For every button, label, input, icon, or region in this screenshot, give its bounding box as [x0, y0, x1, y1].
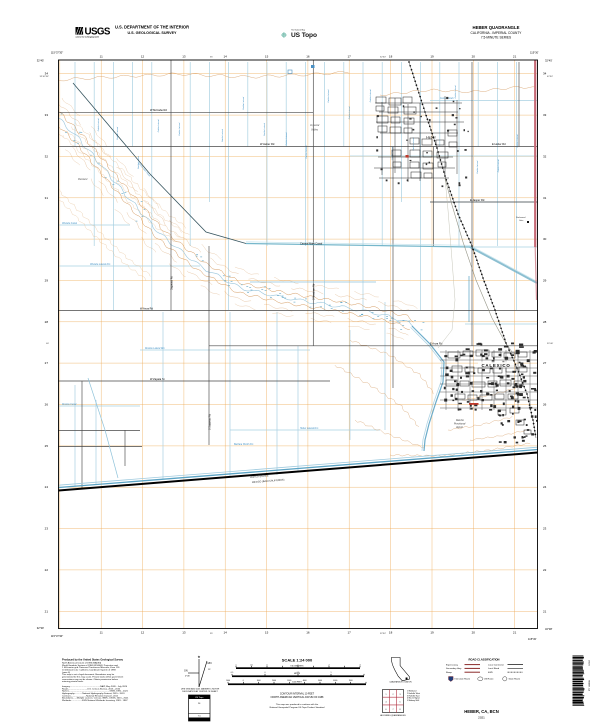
svg-text:Wistaria Lateral Drn: Wistaria Lateral Drn: [90, 263, 111, 266]
svg-text:US Topo: US Topo: [195, 697, 204, 699]
svg-text:115°37'30": 115°37'30": [51, 634, 63, 638]
svg-text:Heber: Heber: [426, 136, 437, 140]
svg-text:12: 12: [141, 631, 145, 635]
svg-text:32: 32: [45, 154, 49, 158]
svg-text:1000 FEET: 1000 FEET: [292, 681, 302, 683]
svg-text:23: 23: [543, 527, 547, 531]
svg-text:4WD: 4WD: [488, 672, 493, 674]
svg-text:14: 14: [224, 631, 228, 635]
svg-text:14: 14: [224, 55, 228, 59]
svg-text:3: 3: [360, 664, 361, 666]
svg-text:32°45': 32°45': [545, 59, 553, 63]
svg-text:16: 16: [306, 631, 310, 635]
svg-text:E Heber Rd: E Heber Rd: [492, 142, 506, 146]
svg-text:32°42'30": 32°42'30": [40, 76, 50, 78]
svg-text:NORTH AMERICAN VERTICAL DATUM: NORTH AMERICAN VERTICAL DATUM OF 1988: [271, 696, 324, 699]
svg-text:Secondary Hwy: Secondary Hwy: [446, 667, 462, 670]
svg-text:29: 29: [543, 278, 547, 282]
svg-text:20: 20: [472, 55, 476, 59]
svg-text:1000: 1000: [226, 680, 230, 682]
svg-text:32°45': 32°45': [37, 59, 45, 63]
svg-text:1: 1: [386, 694, 387, 696]
svg-text:0: 0: [243, 680, 244, 682]
svg-text:24: 24: [45, 485, 49, 489]
svg-text:6: 6: [386, 709, 387, 711]
svg-text:W Anza Rd: W Anza Rd: [140, 306, 154, 310]
svg-text:5: 5: [400, 702, 401, 704]
svg-text:3000: 3000: [287, 680, 291, 682]
svg-text:Meloland: Meloland: [78, 179, 88, 181]
svg-text:Dahlia Lateral: Dahlia Lateral: [476, 160, 479, 173]
svg-text:Dahlia Lateral: Dahlia Lateral: [497, 159, 500, 172]
svg-text:8: 8: [400, 709, 401, 711]
svg-text:National Geospatial Program US: National Geospatial Program US Topo Prod…: [270, 706, 325, 709]
svg-text:Dahlia Lateral: Dahlia Lateral: [327, 89, 330, 102]
svg-text:27: 27: [543, 361, 547, 365]
svg-text:22: 22: [543, 568, 547, 572]
svg-text:QUADRANGLE LOCATION: QUADRANGLE LOCATION: [389, 681, 412, 684]
svg-text:W McCabe Rd: W McCabe Rd: [150, 108, 167, 112]
svg-text:Rockwood: Rockwood: [516, 217, 525, 219]
svg-text:25: 25: [543, 444, 547, 448]
svg-text:Valley: Valley: [311, 128, 319, 132]
svg-text:2: 2: [329, 664, 330, 666]
svg-text:2021: 2021: [478, 716, 485, 720]
svg-text:21: 21: [513, 631, 517, 635]
svg-text:7000: 7000: [349, 680, 353, 682]
svg-text:21: 21: [543, 609, 547, 613]
svg-text:Rancho: Rancho: [456, 420, 465, 422]
svg-text:21: 21: [45, 609, 49, 613]
svg-text:Dahlia Lateral: Dahlia Lateral: [221, 129, 224, 142]
svg-text:E Jasper Rd: E Jasper Rd: [470, 198, 485, 202]
svg-text:Airport: Airport: [455, 426, 463, 429]
svg-text:U.S. GEOLOGICAL SURVEY: U.S. GEOLOGICAL SURVEY: [127, 31, 177, 35]
svg-text:0.5: 0.5: [250, 664, 253, 666]
svg-text:Imperial: Imperial: [310, 123, 320, 127]
svg-text:32: 32: [543, 154, 547, 158]
svg-text:19: 19: [430, 55, 434, 59]
svg-text:Dahlia Lateral: Dahlia Lateral: [305, 145, 308, 158]
svg-text:6000: 6000: [333, 680, 337, 682]
svg-text:28: 28: [543, 320, 547, 324]
svg-text:10 000-foot ticks: California: 10 000-foot ticks: California Coordinate…: [62, 669, 116, 672]
svg-text:Barbara Worth Drn: Barbara Worth Drn: [234, 443, 254, 446]
svg-text:32°40': 32°40': [547, 343, 554, 345]
svg-text:4: 4: [386, 702, 387, 704]
svg-text:22: 22: [45, 568, 49, 572]
svg-text:W Heber Rd: W Heber Rd: [260, 142, 275, 146]
svg-text:Dahlia Lateral: Dahlia Lateral: [369, 89, 372, 102]
svg-text:USGS: USGS: [588, 660, 590, 666]
svg-text:31: 31: [45, 196, 49, 200]
svg-text:16: 16: [306, 55, 310, 59]
svg-text:MN: MN: [208, 661, 212, 665]
svg-text:entering private lands.: entering private lands.: [62, 680, 84, 683]
svg-text:24: 24: [543, 485, 547, 489]
svg-text:Wistaria Canal: Wistaria Canal: [62, 222, 77, 225]
svg-text:11°: 11°: [208, 669, 211, 671]
svg-text:32°39': 32°39': [37, 626, 45, 630]
svg-text:2: 2: [393, 694, 394, 696]
svg-text:115°30': 115°30': [528, 637, 537, 641]
svg-text:Dahlia Lateral: Dahlia Lateral: [157, 119, 160, 132]
svg-text:0: 0: [265, 672, 266, 674]
svg-text:15: 15: [265, 55, 269, 59]
svg-text:23: 23: [45, 527, 49, 531]
svg-text:Dahlia Lateral: Dahlia Lateral: [178, 122, 181, 135]
svg-text:CALEXICO: CALEXICO: [481, 363, 510, 368]
svg-text:GN: GN: [184, 670, 188, 673]
svg-text:13: 13: [182, 631, 186, 635]
svg-text:State Route: State Route: [509, 678, 521, 681]
svg-text:15: 15: [265, 631, 269, 635]
svg-text:0.5: 0.5: [297, 672, 300, 674]
svg-text:28: 28: [45, 320, 49, 324]
svg-text:HEBER QUADRANGLE: HEBER QUADRANGLE: [472, 25, 519, 30]
svg-text:17: 17: [348, 55, 352, 59]
svg-text:Interstate Route: Interstate Route: [455, 678, 471, 681]
svg-text:US Topo: US Topo: [291, 32, 317, 39]
svg-text:E Anza Rd: E Anza Rd: [430, 342, 443, 346]
svg-text:1000: 1000: [257, 680, 261, 682]
svg-text:5000: 5000: [318, 680, 322, 682]
svg-text:Dahlia Lateral: Dahlia Lateral: [97, 118, 100, 131]
svg-text:5 Midway Well: 5 Midway Well: [407, 700, 420, 702]
svg-text:Dahlia Lateral: Dahlia Lateral: [242, 96, 245, 109]
svg-text:US Route: US Route: [484, 678, 494, 681]
svg-text:0.5: 0.5: [231, 672, 234, 674]
svg-text:33: 33: [45, 113, 49, 117]
svg-text:Rositas Lateral Drn: Rositas Lateral Drn: [145, 347, 165, 350]
svg-text:18: 18: [389, 631, 393, 635]
svg-text:Dahlia Lateral: Dahlia Lateral: [348, 106, 351, 119]
svg-text:4000: 4000: [303, 680, 307, 682]
svg-text:Produced by the United States: Produced by the United States Geological…: [62, 658, 124, 662]
svg-text:0°06': 0°06': [185, 676, 191, 678]
svg-text:Local Connector: Local Connector: [488, 663, 504, 666]
svg-text:11: 11: [100, 55, 103, 59]
svg-text:1: 1: [298, 664, 299, 666]
svg-text:DECLINATION AT CENTER OF SHEET: DECLINATION AT CENTER OF SHEET: [182, 690, 218, 693]
svg-text:W Zapata St: W Zapata St: [150, 377, 165, 381]
svg-text:26: 26: [543, 403, 547, 407]
svg-text:30: 30: [45, 237, 49, 241]
svg-text:21: 21: [513, 55, 517, 59]
svg-text:33: 33: [543, 113, 547, 117]
svg-text:Wetlands..................FWS: Wetlands..................FWS National W…: [62, 699, 128, 702]
svg-text:0: 0: [267, 664, 268, 666]
svg-text:Dahlia Lateral: Dahlia Lateral: [116, 126, 119, 139]
svg-text:2000: 2000: [272, 680, 276, 682]
svg-text:science for a changing world: science for a changing world: [76, 37, 100, 39]
svg-text:S Meadows Rd: S Meadows Rd: [313, 283, 316, 300]
svg-text:This map was produced to confo: This map was produced to conform with th…: [276, 703, 319, 706]
svg-text:7: 7: [393, 709, 394, 711]
svg-text:18: 18: [389, 55, 393, 59]
svg-text:SCALE 1:24 000: SCALE 1:24 000: [282, 658, 313, 663]
svg-text:Expressway: Expressway: [446, 663, 459, 666]
svg-text:26: 26: [45, 403, 49, 407]
svg-text:17: 17: [348, 631, 352, 635]
svg-text:11: 11: [100, 631, 103, 635]
svg-text:Rositas Canal: Rositas Canal: [62, 403, 77, 406]
svg-text:U.S. DEPARTMENT OF THE INTERIO: U.S. DEPARTMENT OF THE INTERIOR: [115, 25, 189, 30]
svg-text:Local Road: Local Road: [488, 668, 500, 670]
svg-text:Dahlia Lateral: Dahlia Lateral: [285, 132, 288, 145]
svg-text:12: 12: [141, 55, 145, 59]
svg-text:27: 27: [45, 361, 49, 365]
svg-text:13: 13: [182, 55, 186, 59]
svg-text:3: 3: [400, 694, 401, 696]
svg-text:25: 25: [45, 444, 49, 448]
svg-text:Dahlia Lateral: Dahlia Lateral: [263, 123, 266, 136]
svg-text:1: 1: [331, 672, 332, 674]
svg-text:32'30": 32'30": [380, 633, 386, 635]
svg-text:Provisional: Provisional: [454, 424, 466, 426]
svg-text:1: 1: [236, 664, 237, 666]
svg-text:Dogwood Rd: Dogwood Rd: [171, 276, 174, 290]
svg-text:Central Main Canal: Central Main Canal: [300, 242, 323, 246]
svg-text:42'30": 42'30": [547, 76, 553, 78]
svg-text:7.5-MINUTE SERIES: 7.5-MINUTE SERIES: [481, 36, 511, 40]
svg-text:Ramp: Ramp: [446, 672, 453, 674]
svg-text:19: 19: [430, 631, 434, 635]
svg-text:Heber Lateral Drn: Heber Lateral Drn: [300, 427, 319, 430]
svg-text:ADJOINING QUADRANGLES: ADJOINING QUADRANGLES: [380, 714, 406, 717]
svg-text:20: 20: [472, 631, 476, 635]
svg-text:29: 29: [45, 278, 49, 282]
svg-text:32°38': 32°38': [545, 627, 553, 631]
svg-text:S Dogwood Rd: S Dogwood Rd: [209, 413, 212, 430]
svg-text:ROAD CLASSIFICATION: ROAD CLASSIFICATION: [468, 657, 499, 661]
svg-text:32'30": 32'30": [380, 57, 386, 59]
svg-text:115°37'30": 115°37'30": [51, 51, 63, 55]
svg-text:❉: ❉: [281, 31, 287, 40]
svg-text:Dahlia Lateral: Dahlia Lateral: [454, 85, 457, 98]
svg-text:CALIFORNIA - IMPERIAL COUNTY: CALIFORNIA - IMPERIAL COUNTY: [471, 31, 523, 35]
svg-text:The National Map: The National Map: [291, 28, 305, 31]
svg-text:115°30': 115°30': [530, 51, 539, 55]
svg-text:30: 30: [543, 237, 547, 241]
svg-text:HEBER, CA, BCN: HEBER, CA, BCN: [464, 709, 498, 714]
svg-text:31: 31: [543, 196, 547, 200]
svg-text:HEBER, CA: HEBER, CA: [588, 680, 591, 691]
